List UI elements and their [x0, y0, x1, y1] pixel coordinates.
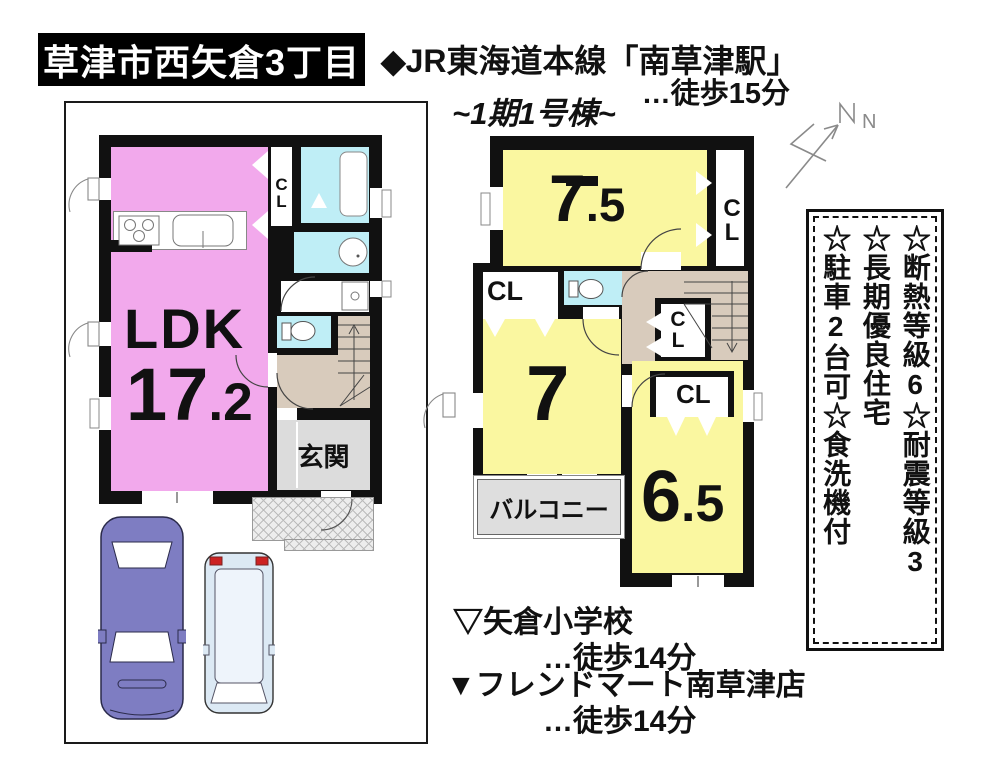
flyer-canvas: 草津市西矢倉3丁目 ◆JR東海道本線「南草津駅」 …徒歩15分 ~1期1号棟~ …	[0, 0, 984, 768]
toilet-icon	[569, 281, 578, 297]
feature-column-3: ☆駐車2台可☆食洗機付	[816, 224, 854, 636]
closet-label-2f-b: CL	[487, 278, 523, 306]
window-sill	[481, 193, 490, 225]
car-compact-topview	[203, 551, 275, 715]
window-sill	[382, 281, 391, 297]
closet-label-2f-a: CL	[719, 197, 745, 246]
car-sedan-topview	[98, 514, 186, 722]
closet-label-2f-c: CL	[666, 309, 690, 352]
door-swing-mark	[252, 211, 268, 239]
room-7-5-label: 7.5	[549, 160, 625, 236]
toilet-icon	[282, 323, 291, 340]
stairs-1f	[338, 325, 370, 406]
taillight	[210, 557, 222, 565]
stairs-2f	[684, 281, 748, 352]
feature-column-2: ☆長期優良住宅	[856, 224, 894, 636]
room-6-5-label: 6.5	[641, 456, 724, 538]
bathtub-icon	[340, 152, 367, 216]
features-inner-border: ☆断熱等級6☆耐震等級3 ☆長期優良住宅 ☆駐車2台可☆食洗機付	[813, 216, 937, 644]
features-box: ☆断熱等級6☆耐震等級3 ☆長期優良住宅 ☆駐車2台可☆食洗機付	[806, 209, 944, 651]
north-arrow-icon: N	[778, 98, 883, 190]
north-letter: N	[862, 111, 876, 133]
store-walk-time: …徒歩14分	[543, 696, 696, 740]
building-number-label: ~1期1号棟~	[452, 88, 616, 133]
door-swing-mark	[311, 193, 327, 208]
ldk-area-value: 17.2	[126, 352, 253, 437]
window-sill	[382, 190, 391, 217]
door-arc	[583, 319, 619, 355]
closet-label-1f: CL	[272, 176, 291, 211]
balcony: バルコニー	[473, 475, 625, 539]
door-arc	[622, 271, 648, 297]
door-arc	[632, 374, 665, 407]
room-7-label: 7	[526, 348, 569, 439]
closet-label-2f-d: CL	[676, 381, 711, 408]
door-swing-mark	[252, 151, 268, 179]
window-sill	[754, 393, 762, 420]
washbasin-icon	[339, 238, 367, 266]
exterior-door-swing	[424, 393, 455, 428]
window-sill	[90, 399, 99, 428]
front-door-arc	[321, 499, 352, 530]
location-title-box: 草津市西矢倉3丁目	[38, 33, 365, 86]
taillight	[256, 557, 268, 565]
balcony-label: バルコニー	[489, 490, 609, 525]
feature-column-1: ☆断熱等級6☆耐震等級3	[896, 224, 934, 636]
porch	[252, 497, 374, 541]
porch-step	[284, 539, 374, 551]
